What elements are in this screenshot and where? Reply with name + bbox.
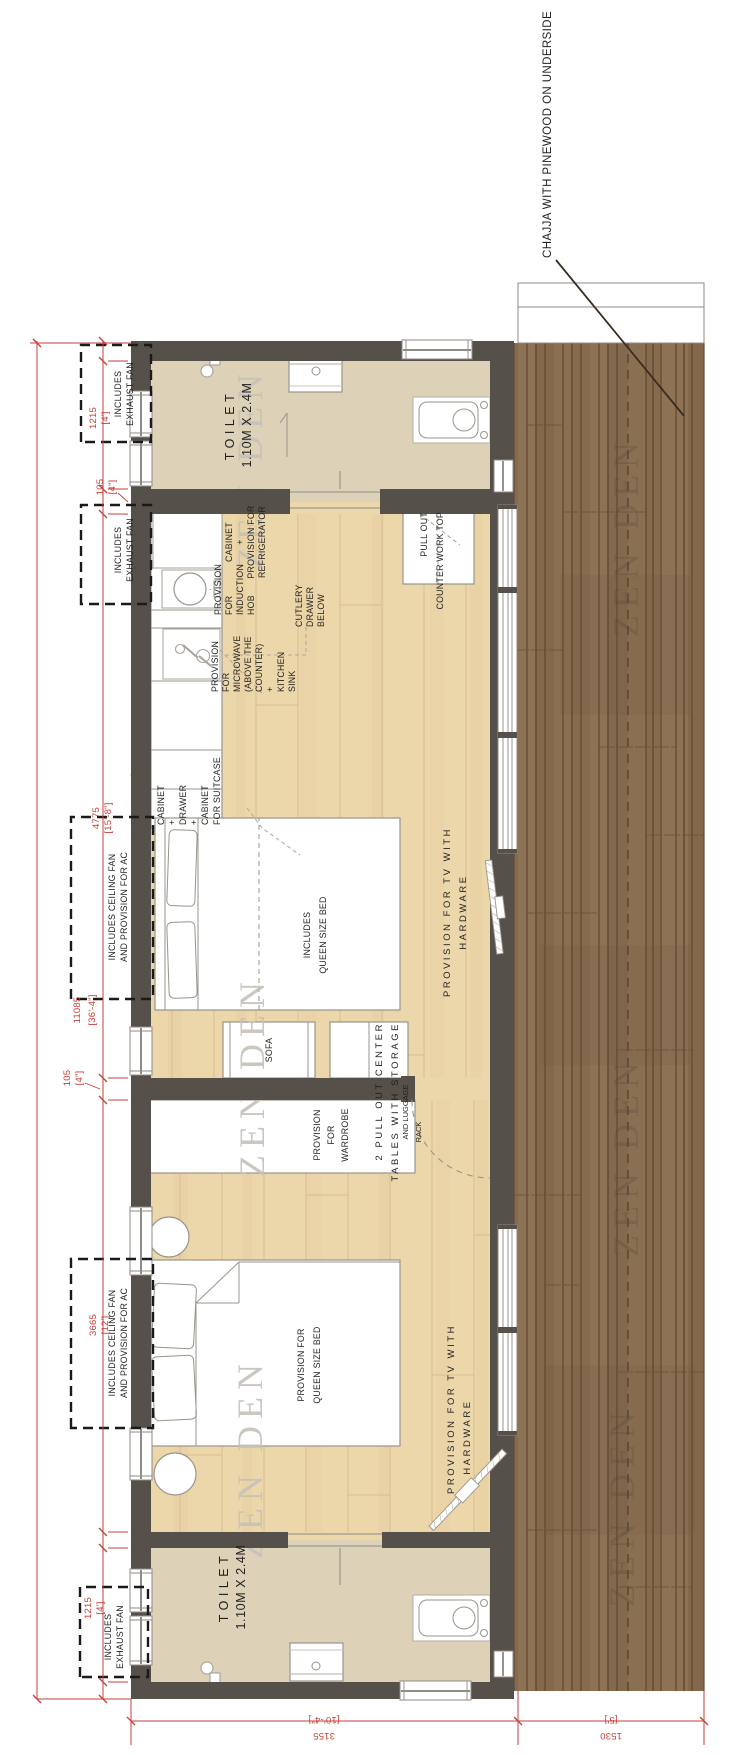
svg-text:INCLUDES CEILING FAN: INCLUDES CEILING FAN (107, 854, 117, 961)
svg-text:EXHAUST FAN: EXHAUST FAN (115, 1605, 125, 1669)
svg-text:TABLES WITH STORAGE: TABLES WITH STORAGE (389, 1022, 400, 1182)
svg-text:PROVISION FOR: PROVISION FOR (296, 1328, 306, 1401)
svg-text:3155: 3155 (313, 1730, 335, 1741)
svg-text:HOB: HOB (246, 595, 256, 615)
svg-text:CABINET: CABINET (156, 785, 166, 825)
svg-text:11085: 11085 (72, 997, 83, 1024)
svg-text:PULL OUT: PULL OUT (419, 512, 429, 557)
svg-text:TOILET: TOILET (217, 1552, 231, 1623)
svg-text:FOR SUITCASE: FOR SUITCASE (212, 757, 222, 825)
svg-text:[4"]: [4"] (74, 1071, 85, 1086)
svg-text:ZEN DEN: ZEN DEN (602, 1405, 642, 1607)
svg-text:FOR: FOR (326, 1125, 336, 1144)
svg-text:INCLUDES: INCLUDES (103, 1614, 113, 1660)
svg-text:FOR: FOR (224, 596, 234, 615)
svg-text:QUEEN SIZE BED: QUEEN SIZE BED (318, 896, 328, 973)
svg-text:DRAWER: DRAWER (305, 587, 315, 627)
svg-text:INCLUDES: INCLUDES (302, 912, 312, 958)
svg-text:AND PROVISION FOR AC: AND PROVISION FOR AC (119, 1288, 129, 1398)
svg-text:+: + (189, 820, 199, 825)
svg-text:AND PROVISION FOR AC: AND PROVISION FOR AC (119, 852, 129, 962)
svg-text:SINK: SINK (287, 670, 297, 692)
svg-text:PROVISION FOR TV WITH: PROVISION FOR TV WITH (445, 1324, 456, 1494)
svg-text:2 PULL OUT CENTER: 2 PULL OUT CENTER (373, 1022, 384, 1161)
svg-text:INCLUDES: INCLUDES (113, 371, 123, 417)
svg-text:[12']: [12'] (100, 1316, 111, 1335)
svg-text:105: 105 (95, 479, 106, 495)
svg-text:[4"]: [4"] (107, 480, 118, 495)
svg-text:1530: 1530 (600, 1730, 622, 1741)
svg-text:105: 105 (62, 1070, 73, 1086)
svg-text:[5']: [5'] (604, 1714, 617, 1725)
svg-text:PROVISION FOR TV WITH: PROVISION FOR TV WITH (441, 827, 452, 997)
svg-text:[4']: [4'] (100, 411, 111, 424)
svg-text:1.10M X 2.4M: 1.10M X 2.4M (240, 382, 254, 467)
svg-text:PROVISION: PROVISION (312, 1109, 322, 1160)
svg-text:CUTLERY: CUTLERY (294, 584, 304, 627)
svg-text:KITCHEN: KITCHEN (276, 652, 286, 692)
svg-text:QUEEN SIZE BED: QUEEN SIZE BED (312, 1326, 322, 1403)
svg-text:1215: 1215 (88, 407, 99, 429)
svg-text:HARDWARE: HARDWARE (461, 1399, 472, 1474)
svg-text:1215: 1215 (83, 1597, 94, 1619)
svg-text:DRAWER: DRAWER (178, 785, 188, 825)
svg-text:BELOW: BELOW (316, 594, 326, 627)
svg-text:ZEN DEN: ZEN DEN (606, 1055, 646, 1257)
svg-text:COUNTER WORK TOP: COUNTER WORK TOP (435, 512, 445, 610)
svg-text:AND LUGGAGE: AND LUGGAGE (401, 1084, 410, 1139)
svg-text:PROVISION FOR: PROVISION FOR (246, 505, 256, 578)
svg-text:CHAJJA WITH PINEWOOD ON UNDERS: CHAJJA WITH PINEWOOD ON UNDERSIDE (542, 11, 554, 258)
svg-text:3665: 3665 (88, 1314, 99, 1336)
svg-text:[4']: [4'] (95, 1601, 106, 1614)
svg-text:SOFA: SOFA (264, 1038, 274, 1062)
svg-text:CABINET: CABINET (200, 785, 210, 825)
svg-text:INCLUDES: INCLUDES (113, 527, 123, 573)
svg-text:[10'-4"]: [10'-4"] (308, 1714, 339, 1725)
svg-text:MICROWAVE: MICROWAVE (232, 636, 242, 693)
svg-text:PROVISION: PROVISION (213, 564, 223, 615)
svg-text:ZEN DEN: ZEN DEN (230, 1357, 270, 1559)
svg-text:4775: 4775 (91, 807, 102, 829)
svg-text:1.10M X 2.4M: 1.10M X 2.4M (234, 1544, 248, 1629)
svg-text:HARDWARE: HARDWARE (457, 874, 468, 949)
svg-text:INCLUDES CEILING FAN: INCLUDES CEILING FAN (107, 1290, 117, 1397)
svg-text:+: + (265, 687, 275, 692)
svg-text:COUNTER): COUNTER) (254, 644, 264, 692)
svg-text:+: + (167, 820, 177, 825)
svg-text:(ABOVE THE: (ABOVE THE (243, 636, 253, 692)
svg-text:+: + (235, 539, 245, 544)
svg-text:ZEN DEN: ZEN DEN (606, 435, 646, 637)
svg-text:INDUCTION: INDUCTION (235, 564, 245, 615)
svg-text:REFRIGERATOR: REFRIGERATOR (257, 506, 267, 578)
svg-text:EXHAUST FAN: EXHAUST FAN (125, 362, 135, 426)
svg-text:[36'-4"]: [36'-4"] (87, 994, 98, 1025)
svg-text:PROVISION: PROVISION (210, 641, 220, 692)
svg-text:CABINET: CABINET (224, 522, 234, 562)
svg-text:RACK: RACK (414, 1122, 423, 1143)
svg-text:ZEN DEN: ZEN DEN (232, 975, 272, 1177)
svg-text:[15'-8"]: [15'-8"] (103, 802, 114, 833)
svg-text:TOILET: TOILET (223, 390, 237, 461)
svg-text:FOR: FOR (221, 673, 231, 692)
svg-text:EXHAUST FAN: EXHAUST FAN (125, 518, 135, 582)
svg-text:WARDROBE: WARDROBE (340, 1108, 350, 1161)
